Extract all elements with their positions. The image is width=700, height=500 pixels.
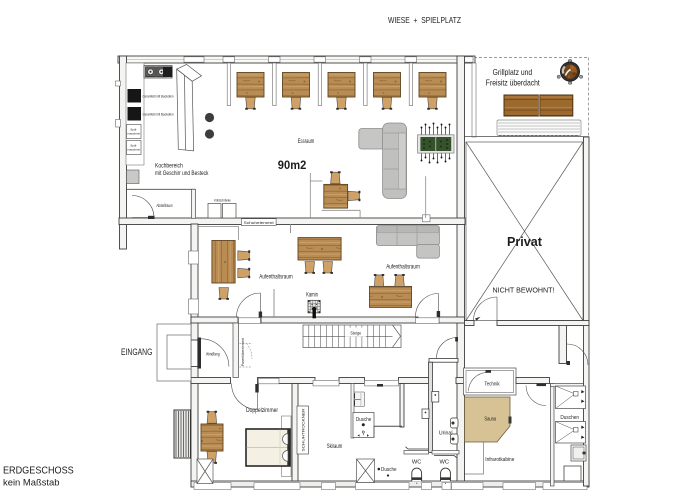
svg-text:kein Maßstab: kein Maßstab [3,478,60,489]
svg-text:SCHUHTROCKNER: SCHUHTROCKNER [300,408,305,451]
svg-text:maschine: maschine [127,132,140,136]
svg-text:Grillplatz und: Grillplatz und [493,67,533,77]
svg-text:Essraum: Essraum [298,139,315,145]
svg-text:WC: WC [440,460,450,466]
svg-text:Dusche: Dusche [356,417,372,423]
svg-text:Steige: Steige [350,330,361,335]
svg-text:EINGANG: EINGANG [121,347,152,357]
svg-text:WC: WC [412,460,422,466]
svg-text:Kühlschränke: Kühlschränke [214,199,231,203]
svg-text:WIESE + SPIELPLATZ: WIESE + SPIELPLATZ [388,15,461,25]
svg-text:Windfang: Windfang [206,352,220,357]
svg-text:Aufenthaltsraum: Aufenthaltsraum [386,265,420,271]
svg-text:Sauna: Sauna [484,417,496,423]
svg-text:Technik: Technik [484,382,499,388]
svg-text:Ceranfeld mit Backofen: Ceranfeld mit Backofen [143,113,174,117]
svg-text:Aufenthaltsraum: Aufenthaltsraum [259,275,292,281]
svg-text:Abstellraum: Abstellraum [156,203,172,208]
svg-text:Kochbereich: Kochbereich [155,164,183,170]
svg-text:Skiraum: Skiraum [327,444,343,450]
svg-text:90m2: 90m2 [278,158,307,172]
svg-text:Dusche: Dusche [381,467,397,473]
svg-text:maschine: maschine [127,148,140,152]
svg-text:Ceranfeld mit Backofen: Ceranfeld mit Backofen [143,95,174,99]
svg-text:Paneelüberelement: Paneelüberelement [241,338,245,366]
svg-text:mit Geschirr und Besteck: mit Geschirr und Besteck [155,171,209,177]
svg-text:Duschen: Duschen [560,415,579,421]
svg-text:ERDGESCHOSS: ERDGESCHOSS [3,464,74,476]
svg-text:Freisitz überdacht: Freisitz überdacht [486,77,541,87]
svg-text:Schuhelement: Schuhelement [244,220,275,225]
svg-text:Infrarotkabine: Infrarotkabine [485,457,514,463]
svg-text:Kamin: Kamin [306,293,318,299]
svg-text:Privat: Privat [507,235,543,249]
svg-text:NICHT BEWOHNT!: NICHT BEWOHNT! [493,286,555,295]
